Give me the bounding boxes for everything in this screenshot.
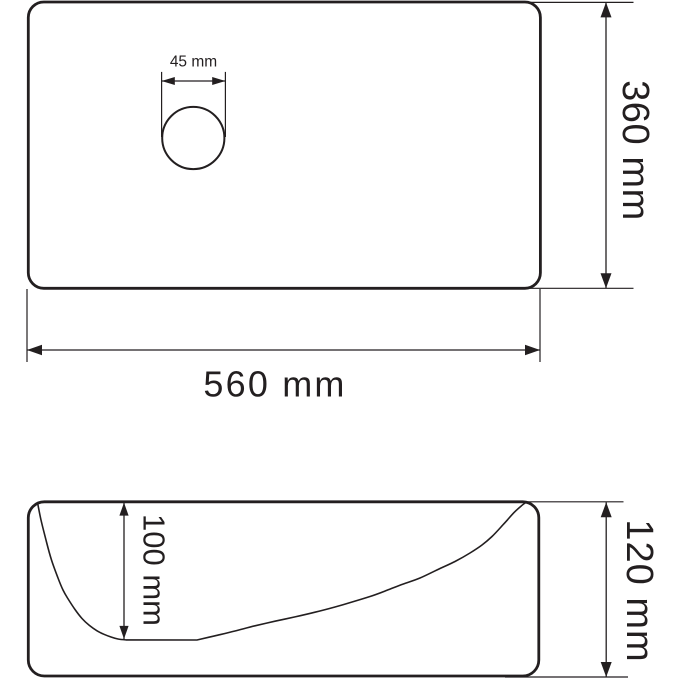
svg-text:360 mm: 360 mm bbox=[614, 80, 656, 221]
svg-text:560 mm: 560 mm bbox=[203, 364, 346, 405]
svg-text:120 mm: 120 mm bbox=[618, 519, 660, 662]
svg-text:45 mm: 45 mm bbox=[170, 54, 217, 71]
svg-text:100 mm: 100 mm bbox=[137, 514, 172, 626]
